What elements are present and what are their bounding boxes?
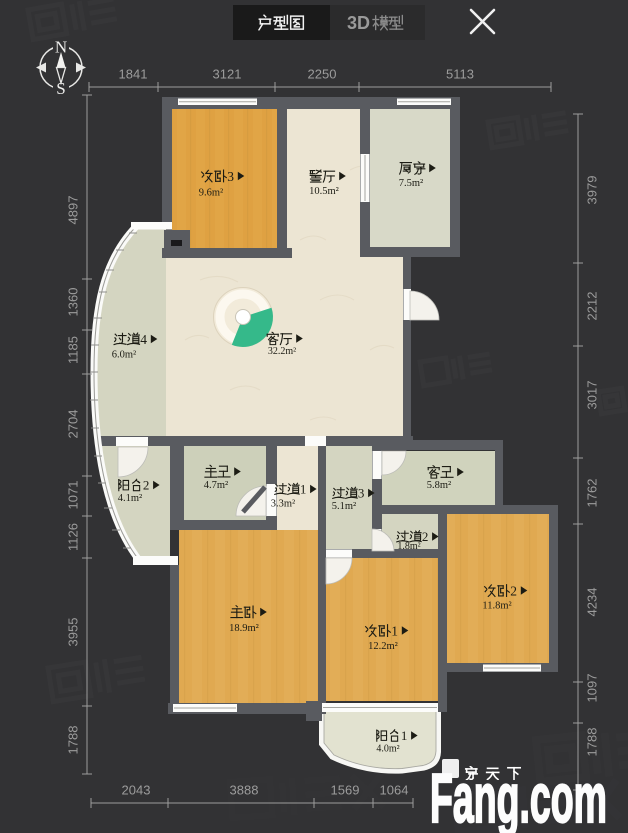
svg-text:3: 3 [227,169,234,184]
svg-text:3979: 3979 [585,176,600,205]
svg-text:3D: 3D [347,13,370,33]
svg-text:5113: 5113 [446,67,474,82]
svg-text:1071: 1071 [66,481,81,510]
svg-text:2212: 2212 [585,292,600,321]
svg-text:7.5m²: 7.5m² [399,178,423,189]
svg-text:N: N [55,38,67,57]
svg-text:1788: 1788 [585,728,600,757]
svg-text:2043: 2043 [122,783,151,798]
svg-text:1569: 1569 [331,783,360,798]
svg-text:1360: 1360 [66,288,81,317]
svg-text:2: 2 [143,478,150,493]
svg-text:6.0m²: 6.0m² [112,349,136,360]
svg-text:Fang.com: Fang.com [430,759,607,833]
svg-text:1185: 1185 [66,336,81,364]
svg-text:1762: 1762 [585,479,600,508]
svg-text:1064: 1064 [380,783,409,798]
svg-text:4.1m²: 4.1m² [118,493,142,504]
svg-text:4.7m²: 4.7m² [204,480,228,491]
svg-text:1126: 1126 [66,523,81,551]
svg-text:3955: 3955 [66,618,81,647]
svg-text:4234: 4234 [585,588,600,617]
svg-text:1097: 1097 [585,674,600,703]
svg-text:10.5m²: 10.5m² [309,186,339,197]
svg-text:1841: 1841 [119,67,148,82]
svg-text:9.6m²: 9.6m² [199,187,223,198]
svg-text:1: 1 [401,728,408,743]
svg-text:3017: 3017 [585,381,600,410]
svg-text:1.8m²: 1.8m² [397,541,420,552]
svg-text:1788: 1788 [66,726,81,755]
svg-text:3888: 3888 [230,783,259,798]
svg-text:32.2m²: 32.2m² [268,346,296,357]
svg-text:2: 2 [510,583,517,598]
svg-text:1: 1 [391,623,398,638]
svg-text:4897: 4897 [66,196,81,225]
svg-text:S: S [56,79,65,98]
svg-text:11.8m²: 11.8m² [482,600,511,611]
svg-text:3121: 3121 [213,67,242,82]
svg-text:2: 2 [422,529,429,544]
svg-text:3.3m²: 3.3m² [271,498,295,509]
svg-text:4: 4 [140,332,147,347]
svg-text:3: 3 [358,486,365,501]
svg-text:5.8m²: 5.8m² [427,480,451,491]
svg-text:2250: 2250 [308,67,337,82]
svg-text:5.1m²: 5.1m² [332,501,356,512]
svg-text:4.0m²: 4.0m² [376,744,399,755]
svg-text:2704: 2704 [66,410,81,439]
svg-text:1: 1 [300,482,307,497]
svg-text:18.9m²: 18.9m² [229,623,259,634]
svg-text:12.2m²: 12.2m² [368,641,398,652]
